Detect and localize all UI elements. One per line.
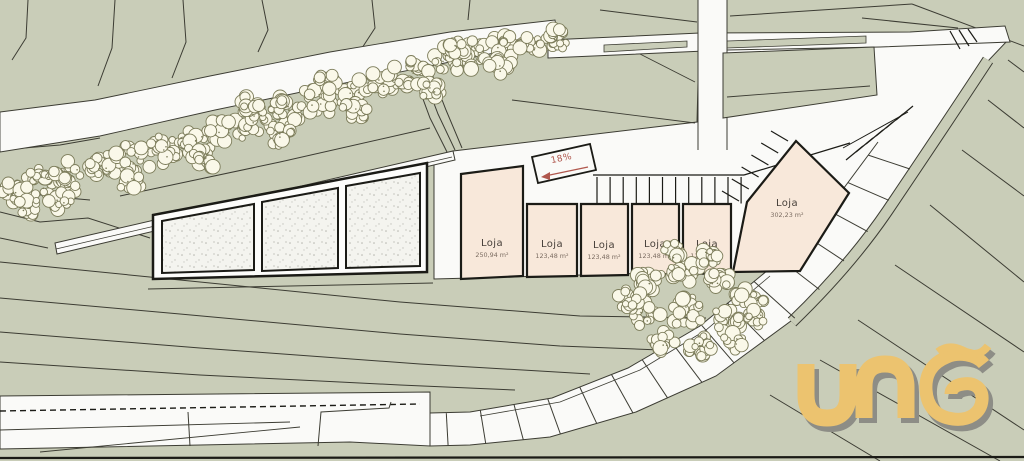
site-plan-drawing: 18% Loja 250,94 m² Loja 123,48 m² Loja 1…: [0, 0, 1024, 461]
unit-label: Loja: [593, 240, 615, 251]
unit-area: 123,48 m²: [587, 253, 621, 261]
unit-label: Loja: [541, 239, 563, 250]
unit-label: Loja: [776, 198, 798, 209]
unit-area: 250,94 m²: [475, 251, 509, 259]
roof-panel: [346, 173, 420, 268]
site-plan-page: una: [0, 0, 1024, 461]
roof-panel: [262, 188, 338, 271]
bottom-road: [0, 392, 430, 452]
unit-label: Loja: [481, 238, 503, 249]
site-bottom-boundary: [0, 457, 1024, 458]
unit-area: 123,48 m²: [535, 252, 569, 260]
unit-area: 302,23 m²: [770, 211, 804, 219]
shop-unit-1: [461, 166, 523, 279]
